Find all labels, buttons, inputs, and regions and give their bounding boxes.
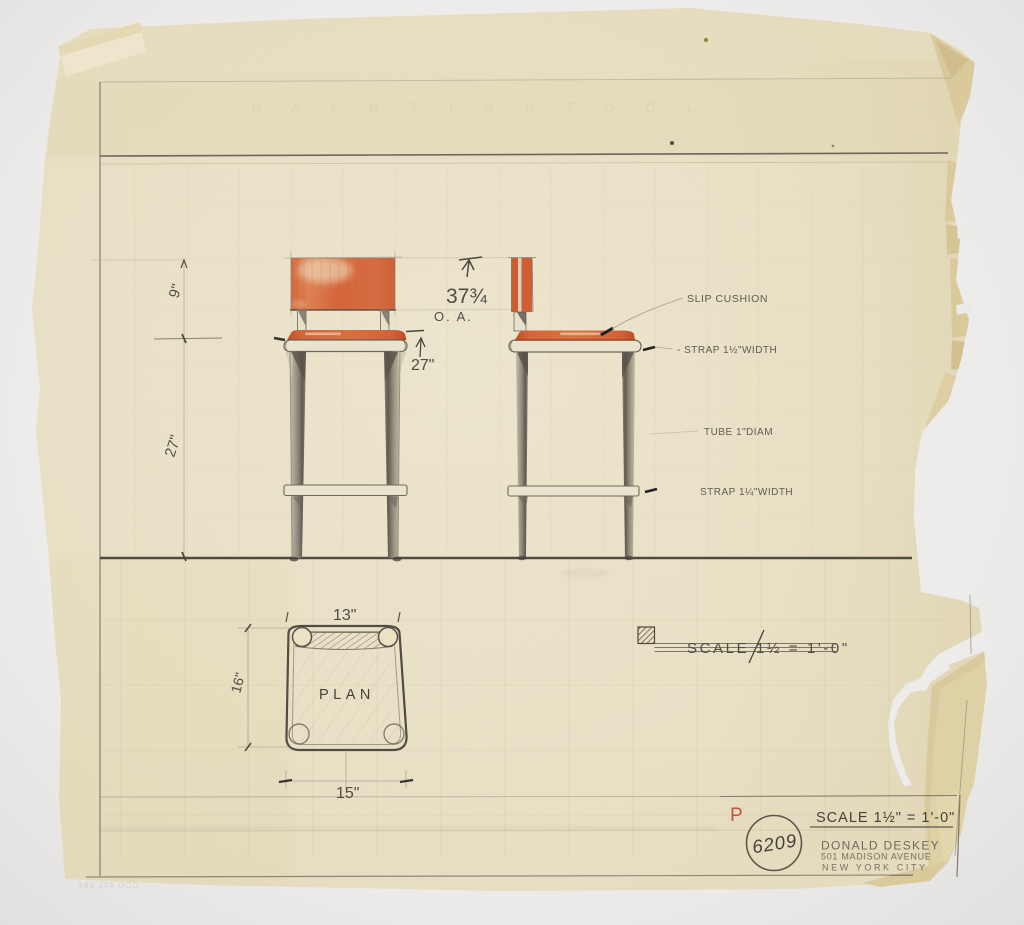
svg-text:O. A.: O. A. bbox=[434, 309, 473, 324]
svg-text:27": 27" bbox=[411, 357, 434, 374]
svg-text:SCALE 1½ = 1'-0": SCALE 1½ = 1'-0" bbox=[687, 640, 850, 657]
svg-text:DONALD DESKEY: DONALD DESKEY bbox=[821, 839, 940, 853]
svg-text:SLIP CUSHION: SLIP CUSHION bbox=[687, 293, 768, 305]
svg-text:TUBE 1"DIAM: TUBE 1"DIAM bbox=[704, 427, 773, 438]
svg-text:- STRAP 1½"WIDTH: - STRAP 1½"WIDTH bbox=[677, 345, 777, 356]
svg-text:D A L M T I N G T O O L: D A L M T I N G T O O L bbox=[252, 101, 708, 115]
svg-text:STRAP 1¼"WIDTH: STRAP 1¼"WIDTH bbox=[700, 486, 793, 498]
svg-text:37¾: 37¾ bbox=[446, 285, 487, 308]
svg-text:NEW YORK CITY: NEW YORK CITY bbox=[822, 863, 928, 873]
svg-text:13": 13" bbox=[333, 607, 356, 624]
svg-text:SCALE 1½" = 1'-0": SCALE 1½" = 1'-0" bbox=[816, 810, 955, 826]
svg-text:COD 401-884: COD 401-884 bbox=[78, 881, 138, 890]
svg-text:501 MADISON AVENUE: 501 MADISON AVENUE bbox=[821, 852, 931, 862]
svg-text:P: P bbox=[730, 805, 743, 826]
svg-text:15": 15" bbox=[336, 785, 359, 802]
svg-text:PLAN: PLAN bbox=[319, 687, 375, 703]
